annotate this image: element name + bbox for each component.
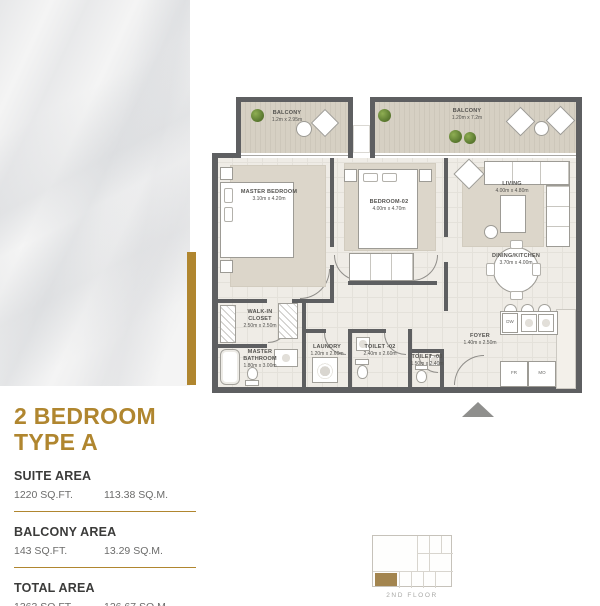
toilet-tank <box>245 380 259 386</box>
sofa <box>484 161 570 185</box>
wall <box>444 262 448 311</box>
kitchen-counter <box>556 309 576 389</box>
section-label: SUITE AREA <box>14 469 196 483</box>
pillow <box>363 173 378 182</box>
pillow <box>224 188 233 203</box>
area-sqm: 13.29 SQ.M. <box>104 545 163 557</box>
key-plan-line <box>417 553 453 554</box>
area-section-suite: SUITE AREA 1220 SQ.FT. 113.38 SQ.M. <box>14 456 196 512</box>
section-label: BALCONY AREA <box>14 525 196 539</box>
dining-chair <box>486 263 495 276</box>
wall <box>330 265 334 303</box>
toilet-bowl <box>357 365 368 379</box>
key-plan-line <box>423 571 424 588</box>
area-section-total: TOTAL AREA 1363 SQ.FT. 126.67 SQ.M. <box>14 568 196 606</box>
vanity-sink <box>274 349 298 367</box>
plant <box>378 109 391 122</box>
marble-texture-photo <box>0 0 190 386</box>
wardrobe <box>220 305 236 343</box>
wall <box>370 97 582 102</box>
kitchen-sink <box>538 314 554 332</box>
key-plan-line <box>399 571 400 588</box>
nightstand <box>220 260 233 273</box>
wall <box>306 329 326 333</box>
bar-stool <box>521 304 534 311</box>
sofa <box>546 185 570 247</box>
plant <box>251 109 264 122</box>
toilet-bowl <box>416 370 427 383</box>
nightstand <box>419 169 432 182</box>
key-plan-line <box>429 536 430 553</box>
wall <box>212 387 582 393</box>
key-plan-line <box>441 536 442 553</box>
area-sqft: 1220 SQ.FT. <box>14 489 104 501</box>
fridge-label: FR <box>500 371 528 376</box>
area-sqft: 143 SQ.FT. <box>14 545 104 557</box>
wall <box>212 153 241 158</box>
wall <box>348 329 352 387</box>
dresser <box>349 253 414 281</box>
wall <box>292 299 334 303</box>
title-line-2: TYPE A <box>14 430 196 456</box>
wall <box>236 97 241 158</box>
balcony-table <box>534 121 549 136</box>
coffee-table <box>500 195 526 233</box>
pillow <box>382 173 397 182</box>
wall <box>330 158 334 247</box>
page-title: 2 BEDROOM TYPE A <box>14 404 196 456</box>
wall <box>352 329 386 333</box>
wall <box>236 97 353 102</box>
wall <box>408 329 412 387</box>
plant <box>449 130 462 143</box>
wall <box>370 97 375 158</box>
wall <box>576 97 582 393</box>
wall <box>218 299 267 303</box>
nightstand <box>344 169 357 182</box>
wall <box>302 303 306 387</box>
key-plan-highlighted-unit <box>375 573 397 586</box>
section-values: 1220 SQ.FT. 113.38 SQ.M. <box>14 489 196 501</box>
bathtub <box>220 349 240 385</box>
gold-accent-bar <box>187 252 196 385</box>
window-strip <box>375 153 576 158</box>
section-label: TOTAL AREA <box>14 581 196 595</box>
floor-label: 2ND FLOOR <box>372 592 452 599</box>
pillow <box>224 207 233 222</box>
key-plan <box>372 535 452 587</box>
floor-plan: DW FR MO BALCONY 1.2m x 2.95m BALCONY 1.… <box>212 97 584 400</box>
bar-stool <box>504 304 517 311</box>
nightstand <box>220 167 233 180</box>
dining-chair <box>532 263 541 276</box>
wall <box>444 158 448 237</box>
side-table <box>484 225 498 239</box>
microwave-label: MO <box>528 371 556 376</box>
area-sqm: 126.67 SQ.M. <box>104 601 169 606</box>
section-values: 1363 SQ.FT. 126.67 SQ.M. <box>14 601 196 606</box>
dining-chair <box>510 240 523 249</box>
wardrobe <box>278 303 298 339</box>
title-line-1: 2 BEDROOM <box>14 404 196 430</box>
washing-machine <box>312 357 338 383</box>
sink <box>356 337 370 351</box>
wall <box>348 281 437 285</box>
key-plan-line <box>411 571 412 588</box>
bar-stool <box>538 304 551 311</box>
area-section-balcony: BALCONY AREA 143 SQ.FT. 13.29 SQ.M. <box>14 512 196 568</box>
wall <box>218 344 267 348</box>
dining-chair <box>510 291 523 300</box>
key-plan-line <box>373 571 453 572</box>
toilet-bowl <box>247 367 258 380</box>
area-sqm: 113.38 SQ.M. <box>104 489 168 501</box>
facade-recess <box>353 125 370 153</box>
section-values: 143 SQ.FT. 13.29 SQ.M. <box>14 545 196 557</box>
plant <box>464 132 476 144</box>
key-plan-line <box>429 553 430 571</box>
area-sqft: 1363 SQ.FT. <box>14 601 104 606</box>
wall <box>440 349 444 387</box>
dishwasher-label: DW <box>502 320 518 325</box>
sink <box>429 355 440 366</box>
key-plan-line <box>435 571 436 588</box>
wall <box>348 97 353 158</box>
entrance-arrow-icon <box>462 402 494 417</box>
wall <box>212 153 218 393</box>
kitchen-sink <box>521 314 537 332</box>
balcony-table <box>296 121 312 137</box>
info-panel: 2 BEDROOM TYPE A SUITE AREA 1220 SQ.FT. … <box>14 404 196 606</box>
